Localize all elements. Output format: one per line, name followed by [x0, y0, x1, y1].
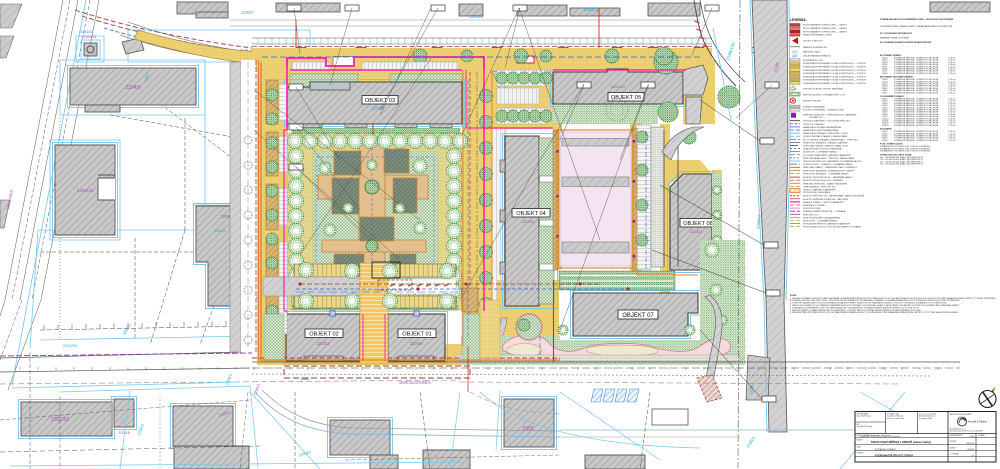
svg-text:SLABOPROUDÉ ROZVODY, NAVRŽENÉ: SLABOPROUDÉ ROZVODY, NAVRŽENÉ	[803, 148, 842, 151]
svg-text:22020: 22020	[241, 10, 253, 15]
svg-text:116: 116	[792, 54, 798, 58]
svg-text:DSP/DPS: DSP/DPS	[966, 443, 975, 445]
svg-text:2204/3: 2204/3	[317, 341, 330, 346]
svg-text:2204/2: 2204/2	[690, 229, 703, 234]
svg-text:KOLEKTOR – OCHRANNÉ PÁSMO: KOLEKTOR – OCHRANNÉ PÁSMO	[803, 151, 837, 154]
svg-text:NOVÉ OPLOCENÍ: NOVÉ OPLOCENÍ	[803, 207, 821, 210]
svg-text:PLYNOVOD NTL – STÁVAJÍCÍ, OCHR: PLYNOVOD NTL – STÁVAJÍCÍ, OCHRANNÉ PÁSMO	[803, 163, 853, 166]
svg-text:ETAPIZACE VÝSTAVBY: ETAPIZACE VÝSTAVBY	[803, 204, 826, 207]
svg-text:POZN.: VÝMĚRY DLE KN: POZN.: VÝMĚRY DLE KN	[880, 143, 903, 146]
svg-text:Ing. Tomáš Kopal: Ing. Tomáš Kopal	[857, 416, 871, 418]
svg-text:NOVOSTAVBA BYTOVÉHO DOMU — OBJ: NOVOSTAVBA BYTOVÉHO DOMU — OBJEKT	[803, 31, 848, 34]
svg-text:POZEMKOVÁ PARCELA – OSTATNÍ PL: POZEMKOVÁ PARCELA – OSTATNÍ PLOCHA, ZELE…	[894, 91, 939, 94]
svg-text:STAVEBNÍ POZEMKY DOTČENÉ:: STAVEBNÍ POZEMKY DOTČENÉ:	[880, 36, 910, 39]
svg-text:KANALIZACE DEŠŤOVÁ NAVRŽENÁ: KANALIZACE DEŠŤOVÁ NAVRŽENÁ	[803, 129, 839, 132]
svg-text:KEŘOVÉ SKUPINY, STŘÍHANÉ ŽIVÉ: KEŘOVÉ SKUPINY, STŘÍHANÉ ŽIVÉ PLOTY	[803, 93, 846, 96]
svg-text:2204/4: 2204/4	[410, 341, 423, 346]
svg-text:1 245 m2: 1 245 m2	[948, 125, 956, 127]
svg-text:VÝKRES:: VÝKRES:	[857, 452, 865, 455]
svg-text:KOMUNIKACE/ZPEVNĚNÁ PLOCHA, KO: KOMUNIKACE/ZPEVNĚNÁ PLOCHA, KONSTRUKCE —…	[803, 82, 866, 85]
svg-text:KOMUNIKACE/ZPEVNĚNÁ PLOCHA, KO: KOMUNIKACE/ZPEVNĚNÁ PLOCHA, KONSTRUKCE —…	[803, 69, 866, 72]
svg-text:2204/10: 2204/10	[77, 188, 94, 193]
svg-text:220413: 220413	[584, 7, 599, 12]
svg-text:HORKOVOD – OCHRANNÉ PÁSMO: HORKOVOD – OCHRANNÉ PÁSMO	[803, 220, 838, 223]
svg-text:HORKOVOD NAVRŽENÝ, KOMPENZÁTOR: HORKOVOD NAVRŽENÝ, KOMPENZÁTORY, ŠACHTY	[803, 169, 855, 172]
svg-text:ELEKTRO SILNOPROUD NN – NAVRŽE: ELEKTRO SILNOPROUD NN – NAVRŽENÉ KABELY	[803, 176, 853, 179]
svg-text:6. VEŠKERÉ PŘELOŽKY INŽENÝRSKÝ: 6. VEŠKERÉ PŘELOŽKY INŽENÝRSKÝCH SÍTÍ VI…	[790, 311, 959, 314]
svg-text:HORKOVOD STÁVAJÍCÍ – OCHRANNÉ: HORKOVOD STÁVAJÍCÍ – OCHRANNÉ PÁSMO	[803, 172, 849, 175]
svg-text:2204/12: 2204/12	[611, 84, 626, 89]
svg-text:STL PLYNOVOD STÁVAJÍCÍ, NAVRHO: STL PLYNOVOD STÁVAJÍCÍ, NAVRHOVANÝ – PŘÍ…	[803, 138, 858, 141]
svg-text:HRANICE STAVBY – OBVOD STAVENI: HRANICE STAVBY – OBVOD STAVENIŠTĚ	[803, 201, 844, 204]
svg-text:OPLOCENÍ STAVENIŠTĚ, ZAŘÍZENÍ: OPLOCENÍ STAVENIŠTĚ, ZAŘÍZENÍ STAVENIŠTĚ	[803, 154, 851, 157]
svg-text:SITUAČNÍ VÝKRESY: SITUAČNÍ VÝKRESY	[875, 448, 897, 451]
svg-text:K východu 2000: K východu 2000	[919, 418, 932, 420]
svg-text:220402: 220402	[79, 29, 93, 34]
svg-text:KOMUNIKACE/ZPEVNĚNÁ PLOCHA, KO: KOMUNIKACE/ZPEVNĚNÁ PLOCHA, KONSTRUKCE —…	[803, 79, 866, 82]
svg-text:DOTČENÉ POZEMKY STAVBOU, PARC.: DOTČENÉ POZEMKY STAVBOU, PARC.Č. KATASTR…	[880, 25, 953, 28]
svg-text:OBJEKT 05: OBJEKT 05	[611, 95, 642, 101]
svg-text:OBJEKT 07: OBJEKT 07	[622, 313, 654, 319]
svg-text:1 245 m2: 1 245 m2	[948, 73, 956, 75]
svg-text:KV. OCHRANNÁ PÁSMA TECHNICKÉ I: KV. OCHRANNÁ PÁSMA TECHNICKÉ INFRASTRUKT…	[880, 41, 932, 44]
svg-text:OBJEKT 08: OBJEKT 08	[683, 221, 712, 227]
svg-text:HORKOVOD STÁVAJÍCÍ, STÁVAJÍCÍ: HORKOVOD STÁVAJÍCÍ, STÁVAJÍCÍ ZAŘÍZENÍ	[803, 141, 848, 144]
svg-text:NOVOSTAVBA BYTOVÉHO DOMU — OBJ: NOVOSTAVBA BYTOVÉHO DOMU — OBJEKT	[803, 24, 848, 27]
svg-text:KOMUNIKACE/ZPEVNĚNÁ PLOCHA, KO: KOMUNIKACE/ZPEVNĚNÁ PLOCHA, KONSTRUKCE —…	[803, 72, 866, 75]
svg-text:POZEMKOVÁ PARCELA – OSTATNÍ PL: POZEMKOVÁ PARCELA – OSTATNÍ PLOCHA, ZELE…	[894, 72, 939, 75]
svg-text:PŘELOŽKY SÍTÍ: PŘELOŽKY SÍTÍ	[803, 213, 819, 216]
svg-text:KOMUNIKACE/ZPEVNĚNÁ PLOCHA, KO: KOMUNIKACE/ZPEVNĚNÁ PLOCHA, KONSTRUKCE —…	[803, 66, 866, 69]
svg-text:VODOVOD STÁVAJÍCÍ: VODOVOD STÁVAJÍCÍ	[803, 123, 825, 126]
svg-text:KOORDINAČNÍ SITUACE STAVBY: KOORDINAČNÍ SITUACE STAVBY	[875, 454, 914, 457]
svg-text:2204/5: 2204/5	[522, 219, 535, 224]
svg-text:VEŘEJNÉ OSVĚTLENÍ – SVĚTELNÉ B: VEŘEJNÉ OSVĚTLENÍ – SVĚTELNÉ BODY, NAVRŽ…	[803, 113, 857, 116]
svg-text:POZEMKOVÁ PARCELA – OSTATNÍ PL: POZEMKOVÁ PARCELA – OSTATNÍ PLOCHA, ZELE…	[894, 139, 939, 142]
svg-text:ELEKTRO PŘÍPOJKY VN – NAVRHOVA: ELEKTRO PŘÍPOJKY VN – NAVRHOVANÉ, KABELO…	[803, 195, 865, 198]
svg-text:PROVIZORNÍ PŘÍPOJKY ZAŘÍZENÍ S: PROVIZORNÍ PŘÍPOJKY ZAŘÍZENÍ STAVENIŠTĚ	[803, 223, 851, 226]
svg-text:lllo424: lllo424	[214, 228, 226, 233]
svg-text:HRANICE ŘEŠENÉHO ÚZEMÍ: HRANICE ŘEŠENÉHO ÚZEMÍ	[803, 34, 832, 37]
svg-text:STOŽÁRY VO: STOŽÁRY VO	[809, 116, 823, 119]
svg-text:06/2022: 06/2022	[968, 449, 975, 451]
svg-text:POZEMKOVÁ PARCELA – OSTATNÍ PL: POZEMKOVÁ PARCELA – OSTATNÍ PLOCHA, ZELE…	[894, 124, 939, 127]
svg-text:KOMUNIKACE/ZPEVNĚNÁ PLOCHA, KO: KOMUNIKACE/ZPEVNĚNÁ PLOCHA, KONSTRUKCE —…	[803, 62, 866, 65]
svg-text:220414: 220414	[469, 14, 484, 19]
svg-text:KANALIZACE SPLAŠKOVÁ NAVRŽENÁ: KANALIZACE SPLAŠKOVÁ NAVRŽENÁ	[803, 126, 841, 129]
svg-text:VZROSTLÁ ZELEŇ, STROMY NAVRŽEN: VZROSTLÁ ZELEŇ, STROMY NAVRŽENÉ	[803, 88, 844, 91]
svg-text:1:500: 1:500	[970, 436, 975, 438]
svg-text:2204/11: 2204/11	[83, 35, 96, 39]
svg-text:ZPEVNĚNÉ PLOCHY: ZPEVNĚNÉ PLOCHY	[803, 59, 824, 62]
svg-text:HORKOVODNÍ PŘÍPOJKA NAVRŽENÁ: HORKOVODNÍ PŘÍPOJKA NAVRŽENÁ	[803, 216, 840, 219]
svg-text:2305: 2305	[522, 426, 533, 432]
svg-text:OBJEKT 01: OBJEKT 01	[402, 332, 431, 338]
svg-text:1 245 m2: 1 245 m2	[948, 92, 956, 94]
svg-text:KV. VYSOČANSKÉ OBYTNÉ BLOKY: KV. VYSOČANSKÉ OBYTNÉ BLOKY	[880, 32, 913, 35]
svg-text:1 245 m2: 1 245 m2	[948, 140, 956, 142]
svg-text:2980: 2980	[301, 377, 309, 381]
svg-text:NÁZEV:: NÁZEV:	[857, 439, 864, 442]
svg-text:2204/9: 2204/9	[125, 85, 141, 91]
svg-text:Sokolovská 2204/8, 190 00 Prah: Sokolovská 2204/8, 190 00 Praha 9, KÚ Vy…	[860, 435, 900, 438]
svg-text:2206/5: 2206/5	[118, 431, 130, 435]
svg-text:STÁVAJÍCÍ INŽENÝRSKÉ SÍTĚ – OC: STÁVAJÍCÍ INŽENÝRSKÉ SÍTĚ – OCHRANA	[803, 210, 846, 213]
svg-text:PROVIZORNÍ KOMUNIKACE: PROVIZORNÍ KOMUNIKACE	[803, 191, 831, 194]
svg-text:2204/7: 2204/7	[882, 92, 888, 94]
svg-text:STÁVAJÍCÍ ZÁSTAVBA: STÁVAJÍCÍ ZÁSTAVBA	[803, 105, 825, 108]
svg-text:LEGENDA:: LEGENDA:	[790, 18, 807, 22]
svg-text:PARCELNÍ ČÍSLA: PARCELNÍ ČÍSLA	[803, 50, 820, 53]
svg-text:SOKOLOVSKÁ MĚŘENA V OBNOVĚ (si: SOKOLOVSKÁ MĚŘENA V OBNOVĚ (situace stav…	[871, 441, 931, 444]
svg-text:2204/8: 2204/8	[372, 106, 385, 111]
svg-text:ARCHITEKTONICKÁ KANC.: ARCHITEKTONICKÁ KANC.	[950, 413, 972, 416]
svg-text:VODOVOD NAVRŽENÝ, VODOVODNÍ PŘ: VODOVOD NAVRŽENÝ, VODOVODNÍ PŘÍPOJKY	[803, 120, 851, 123]
svg-text:POZN.:: POZN.:	[790, 295, 798, 297]
svg-text:KÁCENÉ STROMY: KÁCENÉ STROMY	[803, 100, 822, 103]
svg-text:ELEKTRO SILNOPROUD VN – STÁVAJ: ELEKTRO SILNOPROUD VN – STÁVAJÍCÍ	[803, 179, 844, 182]
svg-text:2201/50: 2201/50	[63, 343, 78, 348]
svg-text:SOKOLOVSKÁ: SOKOLOVSKÁ	[399, 379, 432, 385]
svg-text:SOUŘADNICOVÝ SYSTÉM S-JTSK, VÝ: SOUŘADNICOVÝ SYSTÉM S-JTSK, VÝŠKOVÝ SYST…	[880, 150, 930, 153]
svg-text:Ing. Michal Novotný: Ing. Michal Novotný	[857, 425, 873, 428]
svg-text:OBJEKT 04: OBJEKT 04	[516, 211, 545, 217]
svg-text:ELEKTRO VEŘEJNÉ OSVĚTLENÍ – NA: ELEKTRO VEŘEJNÉ OSVĚTLENÍ – NAPOJENÍ	[803, 198, 848, 201]
svg-text:VÝMĚRA A BILANCE PLOCH ŘEŠENÉH: VÝMĚRA A BILANCE PLOCH ŘEŠENÉHO ÚZEMÍ – …	[880, 18, 954, 21]
svg-text:OBJEKT 02: OBJEKT 02	[309, 332, 338, 338]
svg-text:TRAFOSTANICE – PŘÍPOJKY VN: TRAFOSTANICE – PŘÍPOJKY VN	[803, 185, 835, 188]
svg-text:Hnedák & Partner: Hnedák & Partner	[968, 421, 987, 424]
svg-text:VEŘEJNÉ OSVĚTLENÍ – KABELY NAV: VEŘEJNÉ OSVĚTLENÍ – KABELY NAVRŽENÉ	[803, 182, 847, 185]
svg-text:SDĚLOVACÍ VEDENÍ, STÁVAJÍCÍ KA: SDĚLOVACÍ VEDENÍ, STÁVAJÍCÍ KABELOVOD	[803, 145, 848, 148]
svg-text:VODOVODNÍ ŘAD STÁVAJÍCÍ, NAVRH: VODOVODNÍ ŘAD STÁVAJÍCÍ, NAVRHOVANÉ	[803, 135, 848, 138]
svg-text:KANALIZACE STÁVAJÍCÍ, PŘELOŽKA: KANALIZACE STÁVAJÍCÍ, PŘELOŽKA – STOKY	[803, 132, 849, 135]
svg-text:KOMUNIKACE/ZPEVNĚNÁ PLOCHA, KO: KOMUNIKACE/ZPEVNĚNÁ PLOCHA, KONSTRUKCE —…	[803, 75, 866, 78]
svg-text:C.3: C.3	[971, 455, 974, 457]
svg-text:VSTUP DO BUDOVY: VSTUP DO BUDOVY	[803, 40, 824, 42]
svg-text:OBJEKT 03: OBJEKT 03	[365, 98, 396, 104]
svg-text:2204/13: 2204/13	[882, 125, 889, 127]
svg-text:NOVOSTAVBA BYTOVÉHO DOMU — OBJ: NOVOSTAVBA BYTOVÉHO DOMU — OBJEKT	[803, 27, 848, 30]
svg-text:Ing. arch. Jan Dvořák: Ing. arch. Jan Dvořák	[887, 418, 904, 420]
svg-text:VYPRACOVAL: ING. ARCH. NOVÁK: VYPRACOVAL: ING. ARCH. NOVÁK	[880, 153, 912, 156]
svg-text:PROVIZORNÍ ROZVODY VODY A ELEK: PROVIZORNÍ ROZVODY VODY A ELEKTRA PRO VÝ…	[803, 226, 862, 229]
svg-text:TEL: +420 000 000 000, E-MAIL:: TEL: +420 000 000 000, E-MAIL: INFO@ATEL…	[880, 163, 924, 166]
svg-text:PLOCHY KOMUNIKACÍ – STÁVAJÍCÍ: PLOCHY KOMUNIKACÍ – STÁVAJÍCÍ STAV	[803, 109, 844, 112]
svg-text:VODOVODNÍ PŘÍPOJKY NAVRŽENÉ, V: VODOVODNÍ PŘÍPOJKY NAVRŽENÉ, VODOMĚRNÉ Š…	[803, 160, 863, 163]
svg-text:2204/8: 2204/8	[882, 73, 888, 75]
svg-text:SDĚLOVACÍ KABELY – NAVRŽENÉ TR: SDĚLOVACÍ KABELY – NAVRŽENÉ TRASY, CHRÁN…	[803, 166, 858, 169]
svg-text:ČÍSLA STAVEBNÍCH PARCEL: ČÍSLA STAVEBNÍCH PARCEL	[803, 54, 832, 57]
svg-text:ČÁST:: ČÁST:	[857, 446, 862, 449]
svg-text:2204/5: 2204/5	[882, 140, 888, 142]
svg-text:HRANICE POZEMKŮ KN: HRANICE POZEMKŮ KN	[803, 46, 827, 49]
svg-text:DEŠŤOVÁ KANALIZACE – PŘÍPOJKY,: DEŠŤOVÁ KANALIZACE – PŘÍPOJKY, NAVRHOVAN…	[803, 157, 855, 160]
